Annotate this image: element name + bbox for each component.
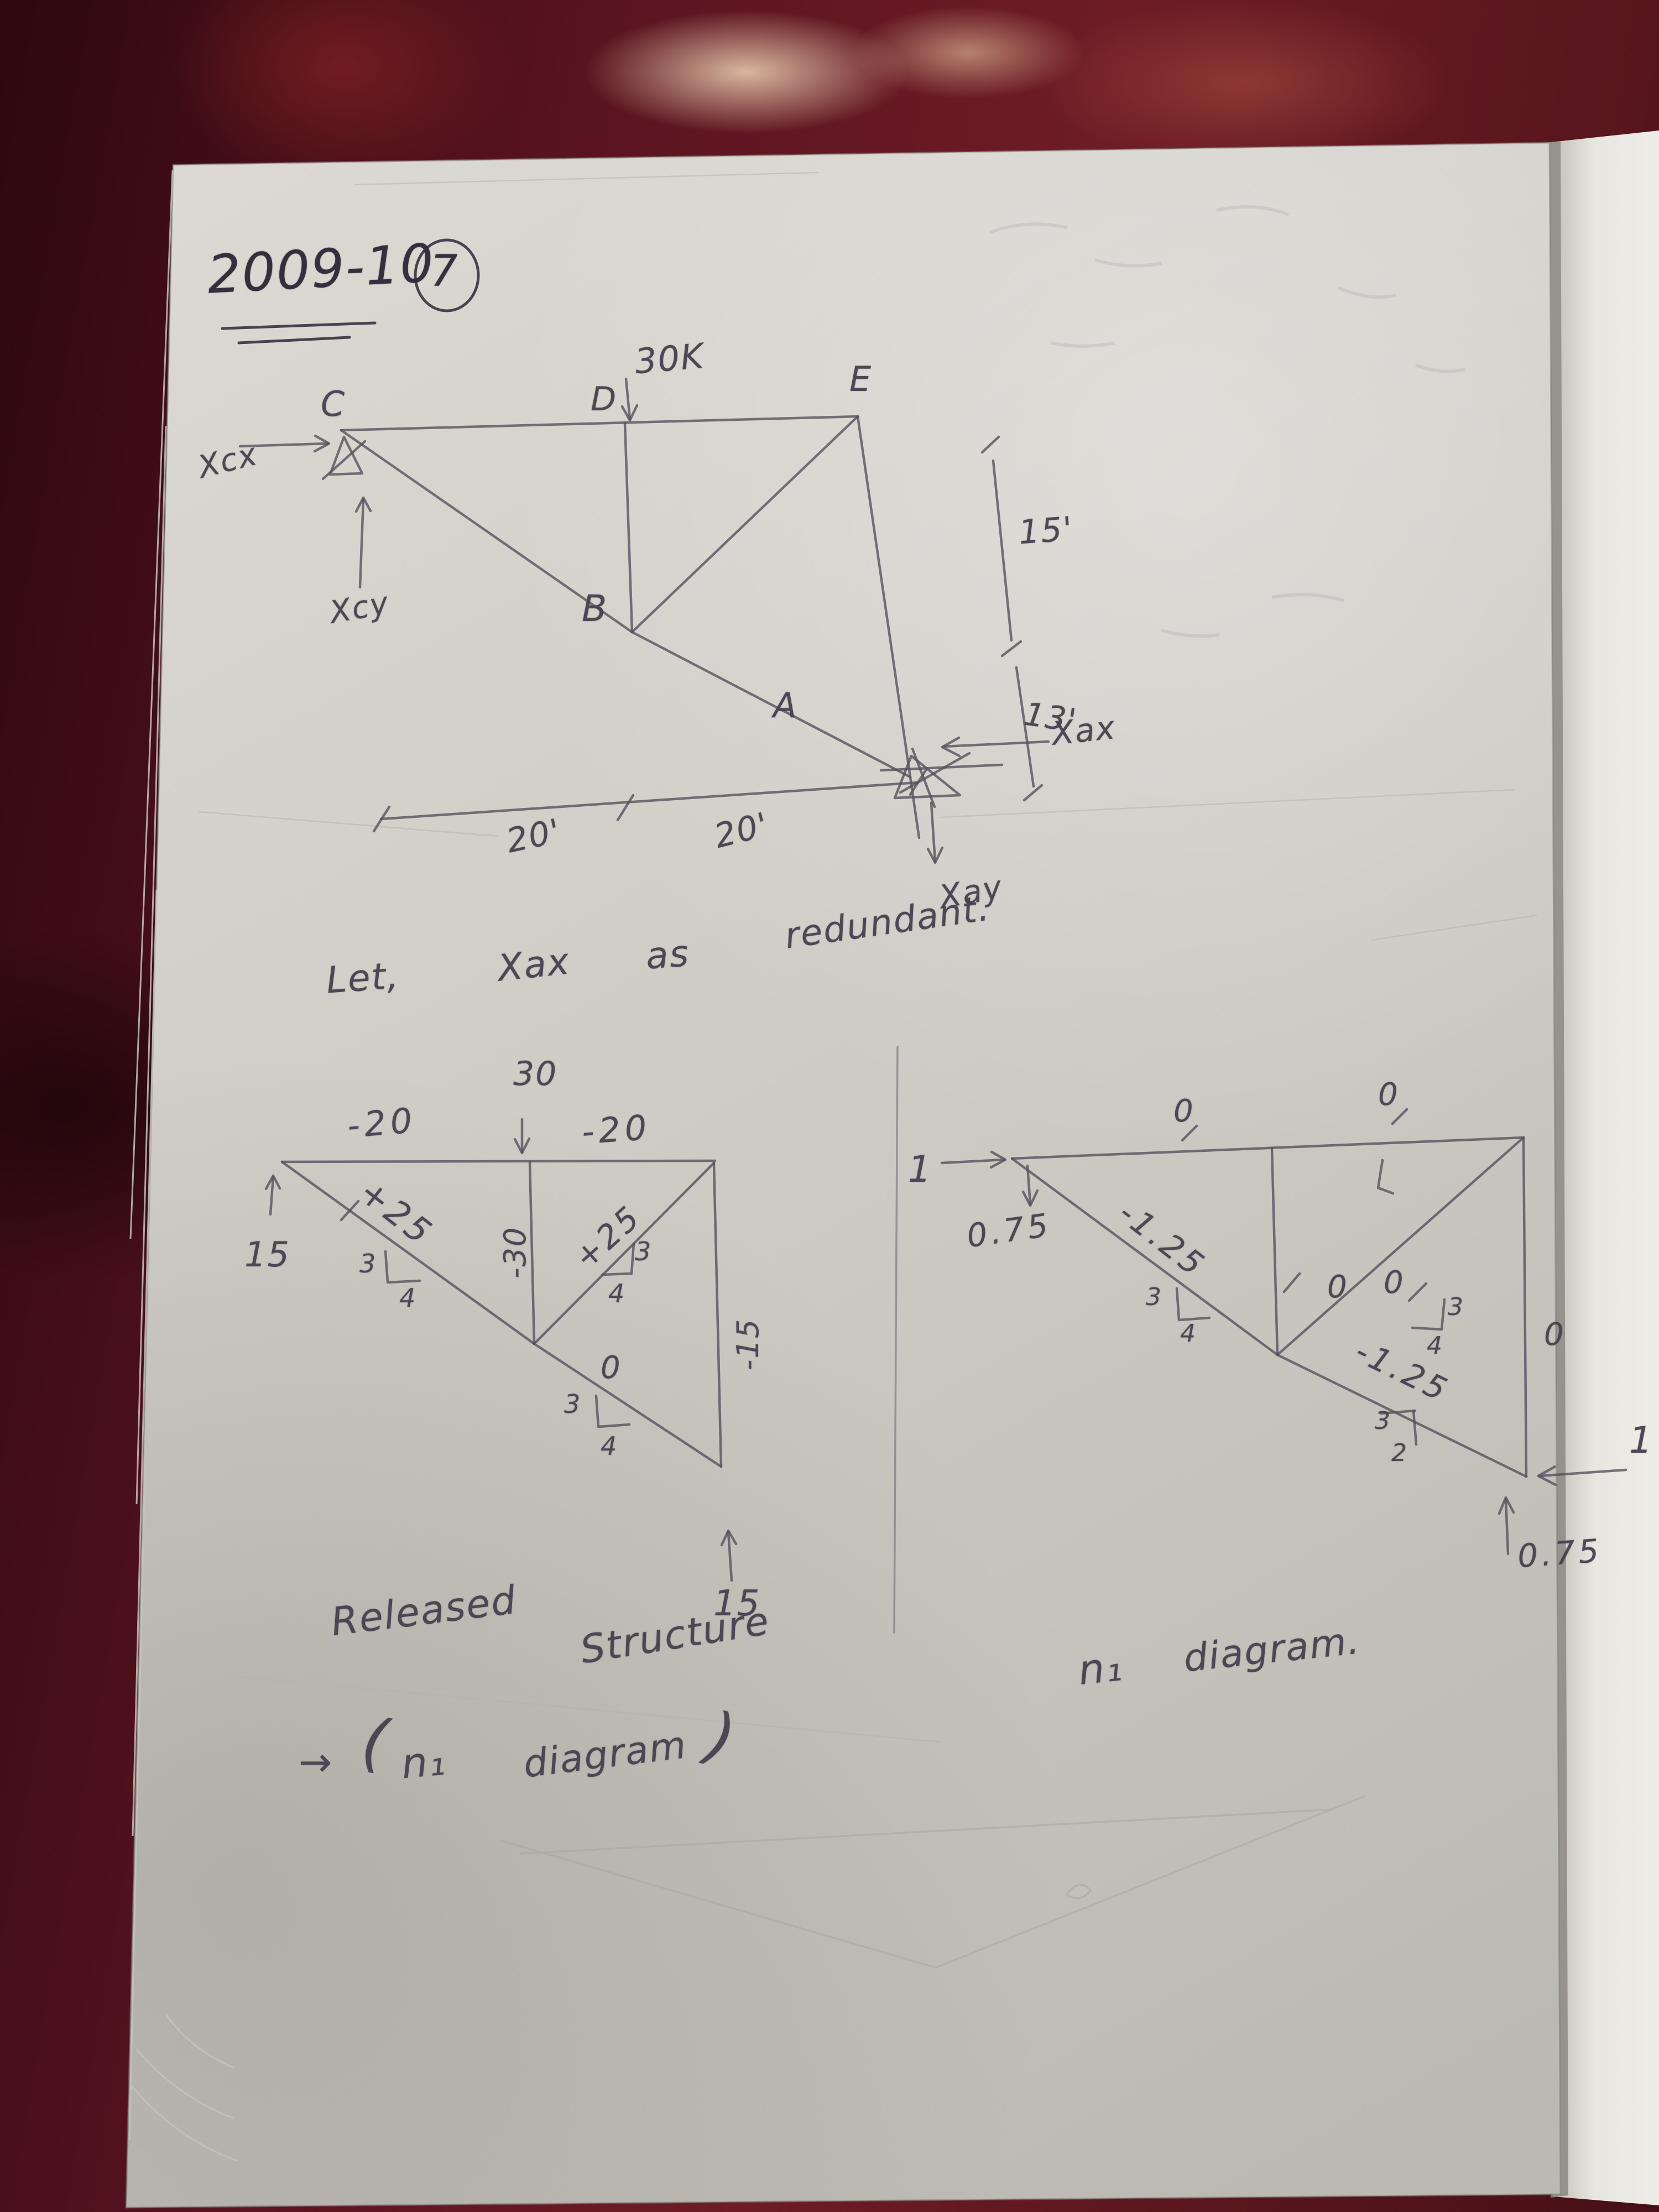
n1-slope-rise-right: 3 <box>1448 1295 1464 1319</box>
dim-label-20ft-right: 20' <box>711 808 772 853</box>
n1-lower-slope-run: 2 <box>1391 1441 1408 1465</box>
rel-member-center-vertical: -30 <box>500 1227 530 1279</box>
note-word-as: as <box>645 935 691 974</box>
rel-member-left-diagonal: +25 <box>353 1174 439 1251</box>
rel-member-top-left: -20 <box>346 1103 418 1144</box>
caption-diagram-word: diagram <box>521 1726 689 1784</box>
note-word-xax: Xax <box>496 943 572 987</box>
dim-label-15ft: 15' <box>1018 513 1074 550</box>
node-label-c: C <box>321 387 346 421</box>
caption-paren-close: ) <box>702 1704 742 1772</box>
dim-label-13ft: 13' <box>1022 698 1079 737</box>
rel-member-right-vertical: -15 <box>733 1318 763 1370</box>
rel-slope-run-lower: 4 <box>601 1433 618 1459</box>
n1-slope-rise-left: 3 <box>1146 1285 1162 1310</box>
node-label-b: B <box>582 591 608 627</box>
rel-slope-run-left: 4 <box>399 1285 416 1311</box>
n1-reaction-right: 0.75 <box>1516 1535 1603 1573</box>
n1-member-right-vertical: 0 <box>1544 1319 1565 1350</box>
reaction-label-xcy: Xcy <box>327 588 392 629</box>
rel-slope-rise-lower: 3 <box>564 1391 581 1417</box>
n1-caption-symbol: n₁ <box>1076 1646 1125 1691</box>
caption-arrow: → <box>299 1742 333 1782</box>
rel-reaction-left: 15 <box>244 1238 290 1272</box>
caption-structure: Structure <box>578 1601 773 1669</box>
n1-unit-load-left: 1 <box>908 1151 932 1188</box>
reaction-label-xcx: Xcx <box>195 439 261 484</box>
n1-member-top-right: 0 <box>1378 1079 1399 1110</box>
rel-slope-run-right: 4 <box>608 1281 625 1306</box>
rel-load-value: 30 <box>513 1057 557 1091</box>
session-label: 2009-10 <box>206 237 436 301</box>
page-number: 7 <box>430 250 459 293</box>
load-label: 30K <box>634 339 706 379</box>
node-label-d: D <box>591 383 617 416</box>
n1-member-left-diagonal: -1.25 <box>1113 1196 1212 1283</box>
n1-lower-slope-rise: 3 <box>1375 1409 1391 1433</box>
rel-member-lower-diagonal: 0 <box>601 1353 622 1384</box>
n1-slope-run-left: 4 <box>1180 1322 1197 1346</box>
rel-slope-rise-left: 3 <box>359 1251 377 1276</box>
n1-slope-run-right: 4 <box>1427 1334 1443 1358</box>
node-label-a: A <box>773 688 797 723</box>
handwriting-layer: 2009-10 7 C D E B A 30K Xcx Xcy Xax Xay … <box>0 0 1659 2212</box>
n1-reaction-left: 0.75 <box>965 1209 1053 1253</box>
note-word-let: Let, <box>325 957 401 999</box>
dim-label-20ft-left: 20' <box>504 814 564 858</box>
caption-paren-open: ( <box>358 1710 392 1776</box>
n1-member-center-vertical: 0 <box>1327 1272 1348 1303</box>
n1-caption-word: diagram. <box>1182 1622 1362 1678</box>
rel-member-top-right: -20 <box>581 1110 652 1150</box>
rel-slope-rise-right: 3 <box>635 1239 652 1264</box>
note-word-redundant: redundant. <box>782 890 992 954</box>
n1-member-right-diagonal: 0 <box>1384 1267 1405 1298</box>
n1-member-top-left: 0 <box>1173 1096 1194 1127</box>
node-label-e: E <box>849 362 872 397</box>
n1-unit-load-right: 1 <box>1629 1422 1653 1459</box>
caption-released: Released <box>329 1580 519 1642</box>
caption-n1-symbol: n₁ <box>400 1740 448 1785</box>
